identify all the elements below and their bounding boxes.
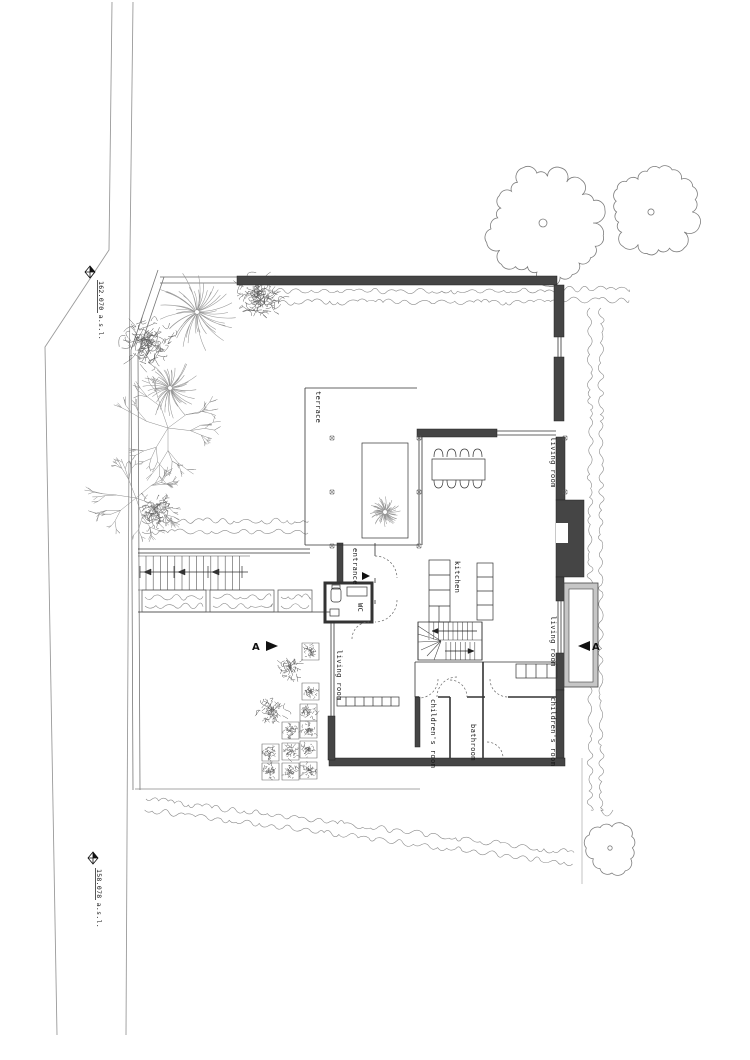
room-label-entrance: entrance: [351, 548, 359, 585]
bedroom-door-arc: [419, 679, 438, 698]
terrace-retaining-edge: [138, 549, 310, 553]
terrace-planter: [362, 443, 408, 538]
ornamental-grass: [143, 363, 197, 418]
benchmark-icon: [85, 266, 95, 278]
hedge-row: [213, 594, 271, 600]
dining-chair: [447, 449, 456, 457]
hedge-row: [245, 299, 556, 305]
closet-divisions: [526, 664, 547, 678]
window-line: [497, 431, 556, 435]
room-label-childrens-room: children's room: [429, 699, 437, 768]
hedge-row: [281, 604, 309, 609]
hedge-row: [145, 810, 573, 866]
window-line: [558, 337, 561, 357]
floor-plan-drawing: A A 162.070 a.s.l. 158.078 a.s.l. terrac…: [0, 0, 750, 1060]
window-line: [558, 601, 561, 653]
interior-stair: [418, 622, 482, 660]
dining-chair: [460, 480, 469, 488]
fireplace-notch: [556, 523, 568, 543]
entrance-door-arc: [375, 556, 397, 578]
east-wall: [554, 285, 564, 337]
entrance-direction-triangle: [362, 572, 370, 580]
kitchen-island: [429, 560, 450, 622]
section-letter: A: [592, 642, 600, 653]
wc-door-arc: [352, 622, 369, 639]
room-label-living-room: living room: [549, 616, 557, 667]
dining-chair: [434, 449, 443, 457]
shrub-scribble: [300, 762, 317, 778]
hedge-row: [145, 603, 203, 609]
kitchen-island-divisions: [429, 575, 450, 622]
dining-chair: [473, 449, 482, 457]
room-label-living-room: living room: [549, 437, 557, 488]
hedge-planter-box: [142, 590, 206, 612]
dining-chair: [434, 480, 443, 488]
hedge-end-cap: [601, 810, 613, 816]
level-value: 158.078 a.s.l.: [95, 869, 103, 928]
shrub-scribble: [304, 686, 319, 699]
fixture-mark: [330, 436, 334, 440]
hedge-row: [598, 308, 604, 810]
section-letter: A: [252, 642, 260, 653]
entrance-wall: [337, 543, 343, 585]
site-plan-canvas: A A 162.070 a.s.l. 158.078 a.s.l. terrac…: [0, 0, 750, 1060]
fixture-mark: [330, 490, 334, 494]
shrub-scribble: [262, 762, 276, 780]
room-label-kitchen: kitchen: [453, 561, 461, 593]
room-label-terrace: terrace: [314, 391, 322, 423]
shrub-scribble: [262, 746, 276, 761]
boundary-top-line: [160, 277, 237, 283]
interior-wall: [415, 697, 420, 747]
fixtures: [330, 443, 557, 706]
tree-trunk-dot: [648, 209, 654, 215]
bedroom-door-arc: [490, 679, 508, 697]
hedge-row: [587, 308, 593, 810]
room-label-wc: WC: [356, 603, 364, 612]
hedge-row: [281, 594, 311, 599]
dining-table: [432, 459, 485, 480]
corridor-wall: [415, 662, 556, 697]
hall-door-arc: [375, 600, 397, 622]
road-and-boundary-lines: [45, 2, 582, 1035]
ornamental-grass: [160, 273, 236, 350]
tree-canopy-outline: [584, 823, 635, 876]
dining-chair: [447, 480, 456, 488]
west-wall: [328, 716, 335, 760]
house-walls: [237, 276, 598, 766]
tree-trunk-dot: [608, 846, 612, 850]
hedge-planter-box: [210, 590, 274, 612]
section-marker-left: A: [252, 641, 278, 653]
room-label-living-room: living room: [335, 650, 343, 701]
room-label-bathroom: bathroom: [469, 724, 477, 761]
thin-plan-lines: [138, 337, 561, 758]
shrub-scribble: [277, 658, 303, 682]
dining-chair: [473, 480, 482, 488]
bathroom-wall: [450, 662, 483, 758]
wardrobe-divisions: [346, 697, 391, 706]
south-wall: [329, 758, 565, 766]
shrub-scribble: [303, 644, 316, 659]
retaining-wall: [237, 276, 557, 285]
east-wall: [556, 577, 564, 601]
bedroom-door-arc: [437, 677, 457, 697]
north-wall: [417, 429, 497, 437]
kitchen-counter-divisions: [477, 577, 493, 605]
branching-tree: [85, 457, 182, 542]
dining-chair: [460, 449, 469, 457]
hedge-row: [213, 603, 273, 608]
hedge-row: [559, 297, 629, 303]
hedge-row: [142, 529, 308, 534]
tree-canopy-outline: [614, 166, 701, 255]
shrub-scribble: [301, 704, 320, 720]
shrub-scribble: [301, 742, 315, 758]
bedroom-door-arc: [487, 742, 503, 758]
garden-vegetation: [85, 166, 701, 876]
east-wall: [554, 357, 564, 421]
level-marker-lower: 158.078 a.s.l.: [88, 852, 103, 928]
shrub-scribble: [283, 723, 298, 739]
hedge-row: [145, 594, 203, 600]
shrub-scribble: [139, 493, 173, 531]
ornamental-grass: [370, 496, 401, 527]
tree-trunk-dot: [539, 219, 547, 227]
shrub-scribble: [282, 765, 299, 778]
garden-stair-treads: [138, 556, 250, 590]
kitchen-counter: [477, 563, 493, 620]
hedge-row: [559, 286, 630, 292]
exterior-terrace-slab-inner: [569, 589, 593, 682]
shrub-scribble: [255, 698, 291, 724]
shrub-scribble: [299, 721, 318, 736]
stair-treads: [418, 622, 482, 660]
room-labels: terrace living room living room living r…: [314, 391, 557, 768]
garden-stair-direction: [140, 566, 248, 578]
glass-wall: [331, 622, 334, 716]
benchmark-icon: [88, 852, 98, 864]
room-label-childrens-room: children's room: [549, 697, 557, 766]
shrub-scribble: [283, 743, 299, 762]
glass-wall: [419, 437, 422, 545]
level-value: 162.070 a.s.l.: [97, 281, 105, 340]
hedge-planter-box: [278, 590, 312, 612]
bathroom-door-arc: [450, 680, 467, 697]
hedge-row: [245, 288, 557, 294]
level-marker-upper: 162.070 a.s.l.: [85, 266, 105, 340]
section-triangle-icon: [266, 641, 278, 651]
hedge-row: [146, 798, 574, 853]
